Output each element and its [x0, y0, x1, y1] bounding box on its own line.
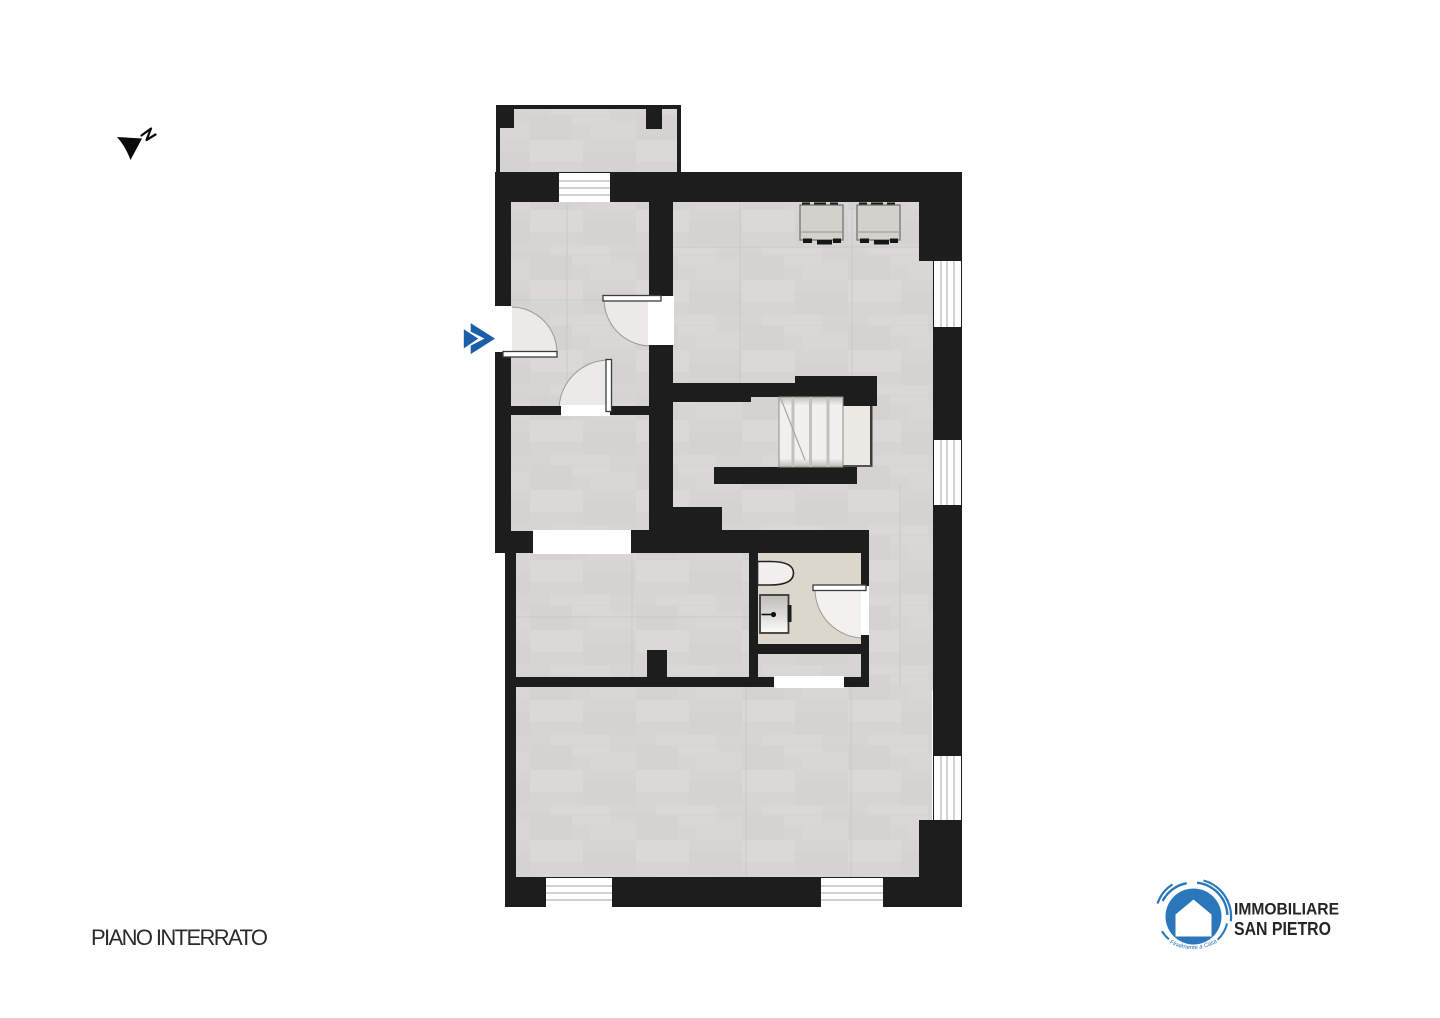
svg-text:SAN PIETRO: SAN PIETRO [1234, 918, 1331, 939]
svg-text:PIANO INTERRATO: PIANO INTERRATO [91, 925, 268, 950]
svg-text:IMMOBILIARE: IMMOBILIARE [1234, 900, 1339, 919]
